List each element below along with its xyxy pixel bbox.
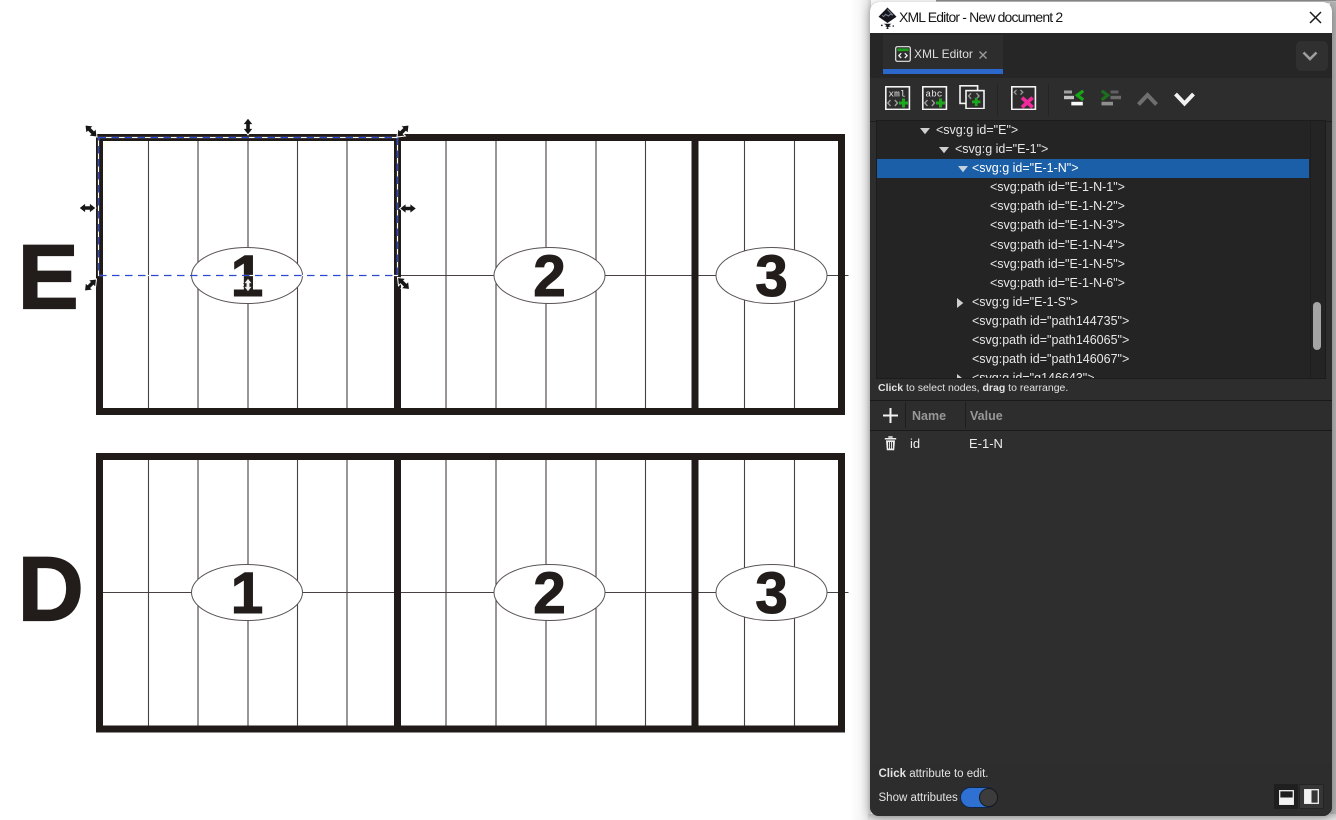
svg-text:abc: abc [926, 89, 943, 100]
svg-text:D: D [18, 539, 84, 641]
svg-text:3: 3 [755, 561, 788, 626]
svg-text:1: 1 [231, 561, 264, 626]
svg-text:3: 3 [755, 244, 788, 309]
svg-text:E: E [18, 227, 79, 329]
svg-text:2: 2 [533, 561, 566, 626]
svg-text:1: 1 [231, 244, 264, 309]
svg-text:xml: xml [888, 89, 905, 100]
svg-text:2: 2 [533, 244, 566, 309]
